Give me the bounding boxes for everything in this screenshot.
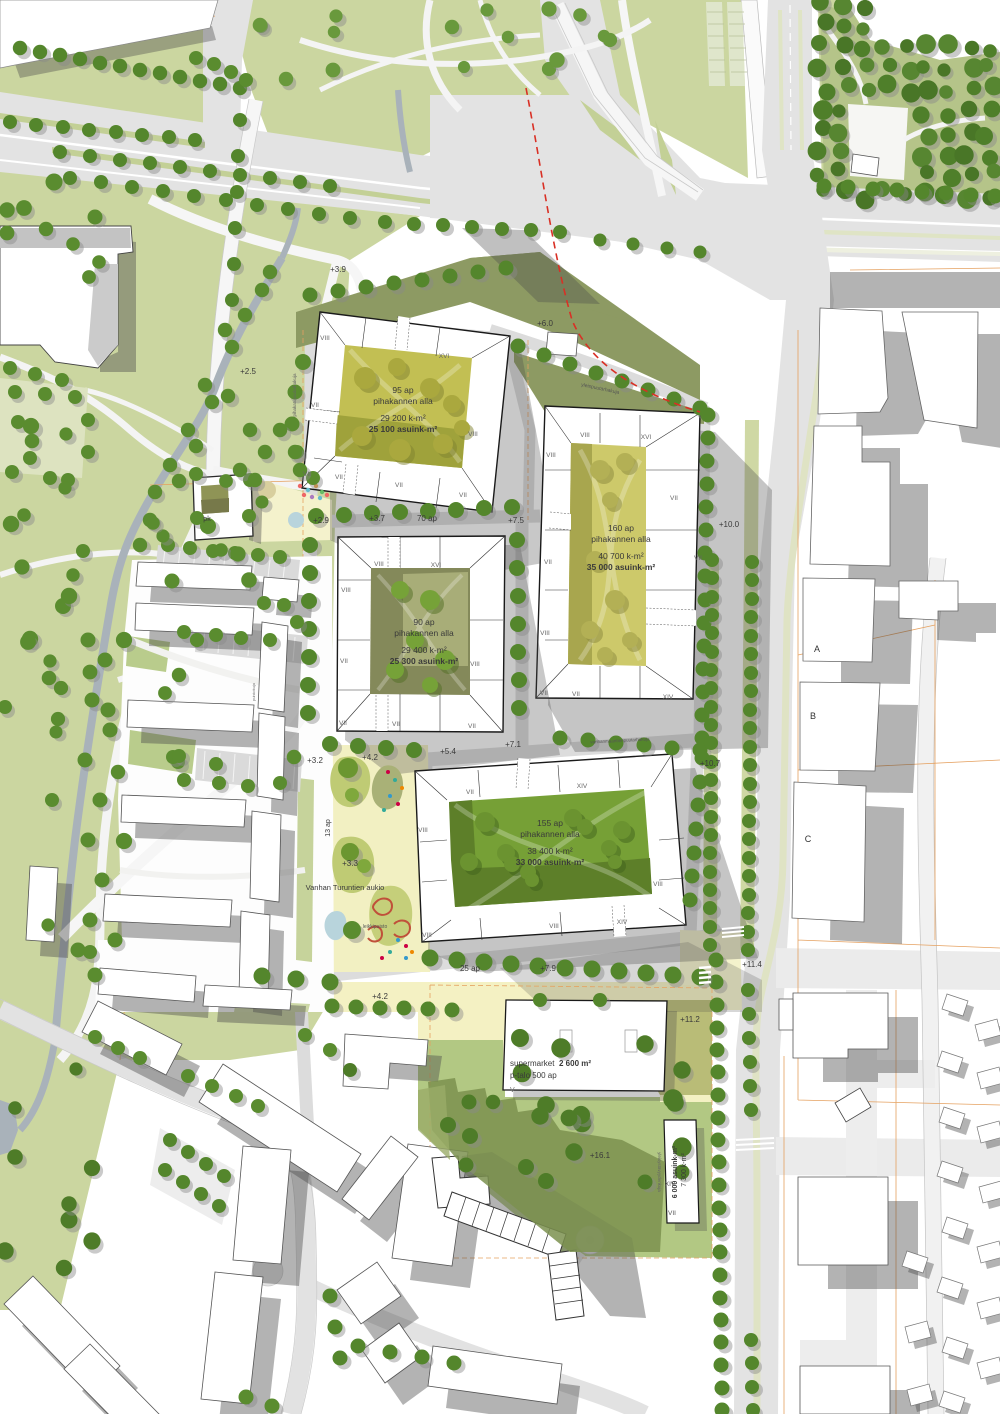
svg-text:VIII: VIII: [653, 881, 663, 888]
svg-text:VII: VII: [572, 691, 580, 698]
svg-text:leikkipuisto: leikkipuisto: [363, 924, 388, 930]
svg-text:VIII: VIII: [341, 587, 351, 594]
svg-text:+4.2: +4.2: [372, 992, 388, 1001]
svg-text:p-talo 500 ap: p-talo 500 ap: [510, 1071, 557, 1080]
svg-text:VII: VII: [392, 721, 400, 728]
svg-text:VII: VII: [468, 723, 476, 730]
svg-text:A: A: [814, 644, 820, 654]
svg-text:Vanhan Turuntien aukio: Vanhan Turuntien aukio: [306, 883, 385, 892]
svg-text:+11.4: +11.4: [742, 960, 762, 969]
svg-text:supermarket: supermarket: [510, 1059, 555, 1068]
svg-text:40 700 k-m²: 40 700 k-m²: [598, 551, 644, 561]
svg-text:VIII: VIII: [320, 335, 330, 342]
svg-text:pihakannen alla: pihakannen alla: [591, 534, 651, 544]
svg-text:XIV: XIV: [577, 783, 588, 790]
svg-text:XVI: XVI: [439, 353, 450, 360]
svg-text:+3.2: +3.2: [307, 756, 323, 765]
svg-text:VIII: VIII: [374, 561, 384, 568]
svg-text:B: B: [810, 711, 816, 721]
svg-text:pihakannen alla: pihakannen alla: [394, 628, 454, 638]
svg-text:+7.1: +7.1: [505, 740, 521, 749]
svg-text:VII: VII: [335, 474, 343, 481]
svg-text:VIII: VIII: [418, 827, 428, 834]
svg-text:29 200 k-m²: 29 200 k-m²: [380, 413, 426, 423]
svg-text:VII: VII: [311, 402, 319, 409]
svg-text:+2.9: +2.9: [313, 516, 329, 525]
svg-text:VII: VII: [459, 492, 467, 499]
svg-text:VII: VII: [694, 555, 702, 562]
svg-text:+7.5: +7.5: [508, 516, 524, 525]
svg-text:XVI: XVI: [641, 434, 652, 441]
svg-text:XIV: XIV: [617, 919, 628, 926]
svg-text:+3.3: +3.3: [342, 859, 358, 868]
svg-text:C: C: [805, 834, 812, 844]
svg-text:25 ap: 25 ap: [460, 964, 481, 973]
svg-text:2 600 m²: 2 600 m²: [559, 1059, 591, 1068]
svg-text:+3.9: +3.9: [330, 265, 346, 274]
svg-text:VIII: VIII: [468, 431, 478, 438]
svg-text:155 ap: 155 ap: [537, 818, 563, 828]
svg-text:VIII: VIII: [470, 661, 480, 668]
svg-text:+5.4: +5.4: [440, 747, 456, 756]
svg-text:VII: VII: [670, 495, 678, 502]
svg-text:pk: pk: [203, 516, 211, 523]
svg-text:70 ap: 70 ap: [417, 514, 438, 523]
svg-text:VII: VII: [668, 1210, 676, 1217]
svg-text:VII: VII: [303, 471, 311, 478]
svg-text:6 000 asuink-m²: 6 000 asuink-m²: [672, 1145, 679, 1198]
svg-text:VIII: VIII: [549, 923, 559, 930]
svg-text:25 300 asuink-m²: 25 300 asuink-m²: [390, 656, 459, 666]
svg-text:VII: VII: [339, 720, 347, 727]
svg-text:90 ap: 90 ap: [413, 617, 435, 627]
svg-text:29 400 k-m²: 29 400 k-m²: [401, 645, 447, 655]
svg-text:XIV: XIV: [663, 694, 674, 701]
svg-text:pihakatupuutarhakuja: pihakatupuutarhakuja: [292, 373, 297, 417]
svg-text:VII: VII: [395, 482, 403, 489]
svg-text:+10.7: +10.7: [700, 759, 721, 768]
svg-text:V: V: [510, 1087, 515, 1094]
svg-text:7 300 k-m²: 7 300 k-m²: [681, 1153, 688, 1187]
svg-text:VII: VII: [340, 658, 348, 665]
svg-text:VIII: VIII: [540, 630, 550, 637]
svg-text:XVI: XVI: [431, 562, 442, 569]
svg-text:+7.9: +7.9: [540, 964, 556, 973]
svg-text:VIII: VIII: [422, 932, 432, 939]
svg-text:+4.2: +4.2: [362, 753, 378, 762]
svg-text:VIII: VIII: [580, 432, 590, 439]
svg-text:VIII: VIII: [546, 452, 556, 459]
svg-text:pihakannen alla: pihakannen alla: [520, 829, 580, 839]
svg-text:+2.5: +2.5: [240, 367, 256, 376]
svg-text:VII: VII: [544, 559, 552, 566]
svg-text:pihakannen alla: pihakannen alla: [373, 396, 433, 406]
svg-text:+6.0: +6.0: [537, 319, 553, 328]
svg-text:95 ap: 95 ap: [392, 385, 414, 395]
svg-text:+16.1: +16.1: [590, 1151, 611, 1160]
svg-text:yleisystävyydenkuja: yleisystävyydenkuja: [657, 1152, 662, 1192]
svg-text:+10.0: +10.0: [719, 520, 740, 529]
svg-text:25 100 asuink-m²: 25 100 asuink-m²: [369, 424, 438, 434]
svg-text:VII: VII: [540, 690, 548, 697]
svg-text:35 000 asuink-m²: 35 000 asuink-m²: [587, 562, 656, 572]
svg-text:13 ap: 13 ap: [325, 819, 332, 837]
svg-text:XIV: XIV: [665, 1181, 676, 1188]
svg-text:VII: VII: [466, 789, 474, 796]
svg-text:38 400 k-m²: 38 400 k-m²: [527, 846, 573, 856]
svg-text:puistokuja: puistokuja: [251, 682, 256, 701]
svg-text:+3.7: +3.7: [369, 514, 385, 523]
svg-text:+11.2: +11.2: [680, 1015, 700, 1024]
svg-text:33 000 asuink-m²: 33 000 asuink-m²: [516, 857, 585, 867]
svg-text:160 ap: 160 ap: [608, 523, 634, 533]
